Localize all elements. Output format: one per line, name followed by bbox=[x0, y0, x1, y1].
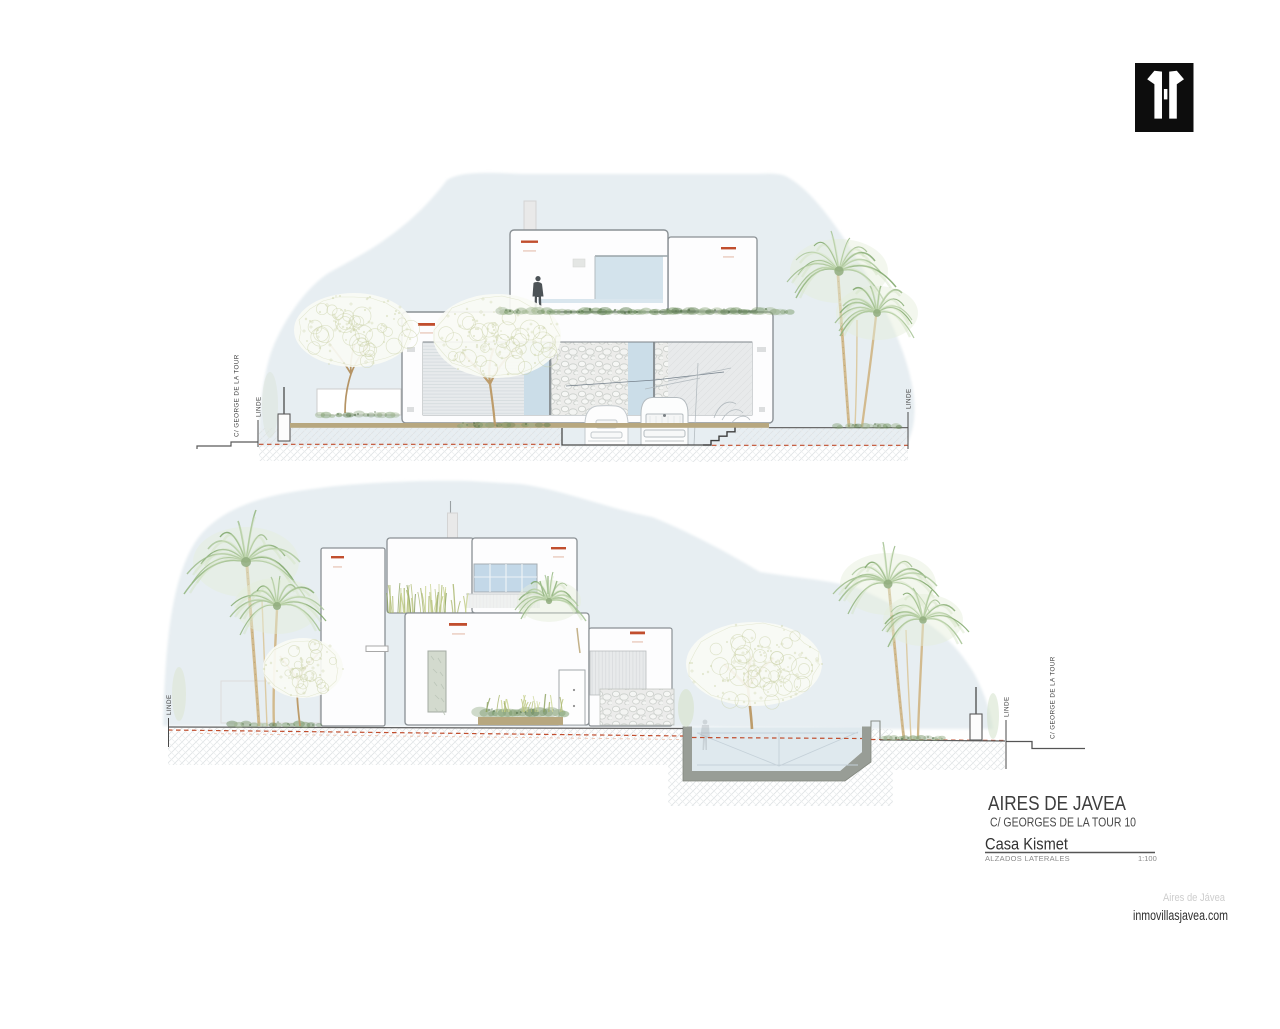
svg-text:C/ GEORGE DE LA TOUR: C/ GEORGE DE LA TOUR bbox=[234, 354, 241, 437]
svg-text:Casa Kismet: Casa Kismet bbox=[985, 836, 1068, 854]
svg-text:LINDE: LINDE bbox=[166, 694, 173, 715]
svg-text:1:100: 1:100 bbox=[1138, 854, 1157, 863]
svg-text:ALZADOS LATERALES: ALZADOS LATERALES bbox=[985, 854, 1070, 863]
svg-text:C/ GEORGE DE LA TOUR: C/ GEORGE DE LA TOUR bbox=[1050, 656, 1057, 739]
svg-text:LINDE: LINDE bbox=[906, 388, 913, 409]
svg-text:inmovillasjavea.com: inmovillasjavea.com bbox=[1133, 908, 1228, 923]
svg-text:LINDE: LINDE bbox=[256, 396, 263, 417]
svg-text:Aires de Jávea: Aires de Jávea bbox=[1163, 892, 1226, 904]
svg-text:AIRES DE JAVEA: AIRES DE JAVEA bbox=[988, 792, 1126, 815]
svg-text:C/ GEORGES DE LA TOUR 10: C/ GEORGES DE LA TOUR 10 bbox=[990, 815, 1136, 830]
svg-text:LINDE: LINDE bbox=[1004, 696, 1011, 717]
